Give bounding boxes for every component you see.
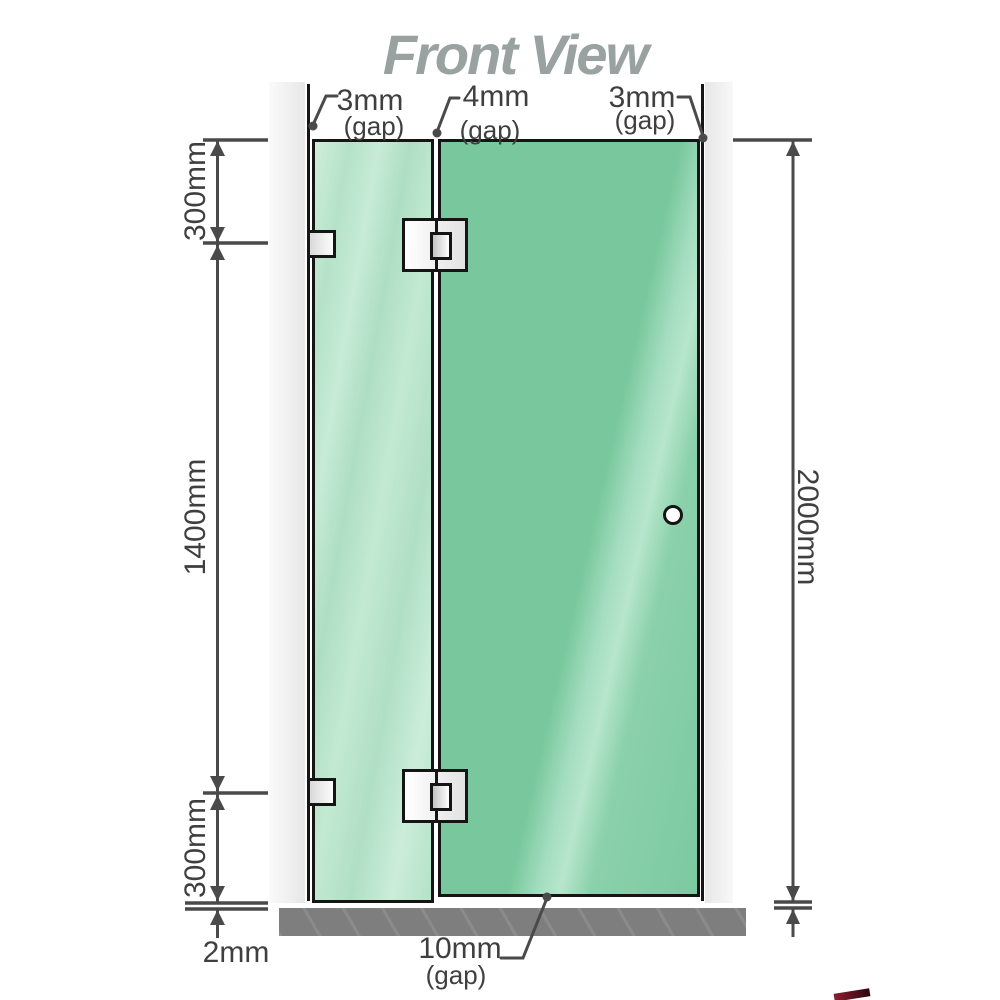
hinge-top-gap-line-lower — [435, 259, 438, 271]
wall-bracket-bottom — [307, 778, 336, 806]
floor-clearance-label: 2mm — [196, 938, 276, 968]
dim-label-left-bottom: 300mm — [181, 798, 211, 898]
hinge-bottom-tongue — [430, 783, 452, 811]
hinge-bottom-gap-line-lower — [435, 810, 438, 822]
logo-fragment — [834, 988, 871, 1000]
gap-note-top-middle: (gap) — [450, 117, 530, 143]
hinge-top-tongue — [430, 232, 452, 260]
front-view-diagram: Front View — [0, 0, 1000, 1000]
gap-note-top-left: (gap) — [334, 113, 414, 139]
dim-label-left-top: 300mm — [181, 141, 211, 241]
dim-label-right-height: 2000mm — [792, 469, 822, 586]
page-title: Front View — [330, 26, 700, 86]
right-wall — [705, 82, 733, 903]
wall-bracket-top — [307, 230, 336, 258]
right-wall-inner-line — [701, 84, 704, 901]
dim-label-left-middle: 1400mm — [181, 459, 211, 576]
glass-door-panel — [438, 139, 700, 897]
left-wall — [269, 82, 305, 903]
floor-base — [279, 908, 746, 936]
gap-label-top-middle: 4mm — [461, 82, 531, 112]
gap-note-bottom: (gap) — [416, 962, 496, 988]
gap-note-top-right: (gap) — [605, 107, 685, 133]
door-handle — [663, 505, 683, 525]
